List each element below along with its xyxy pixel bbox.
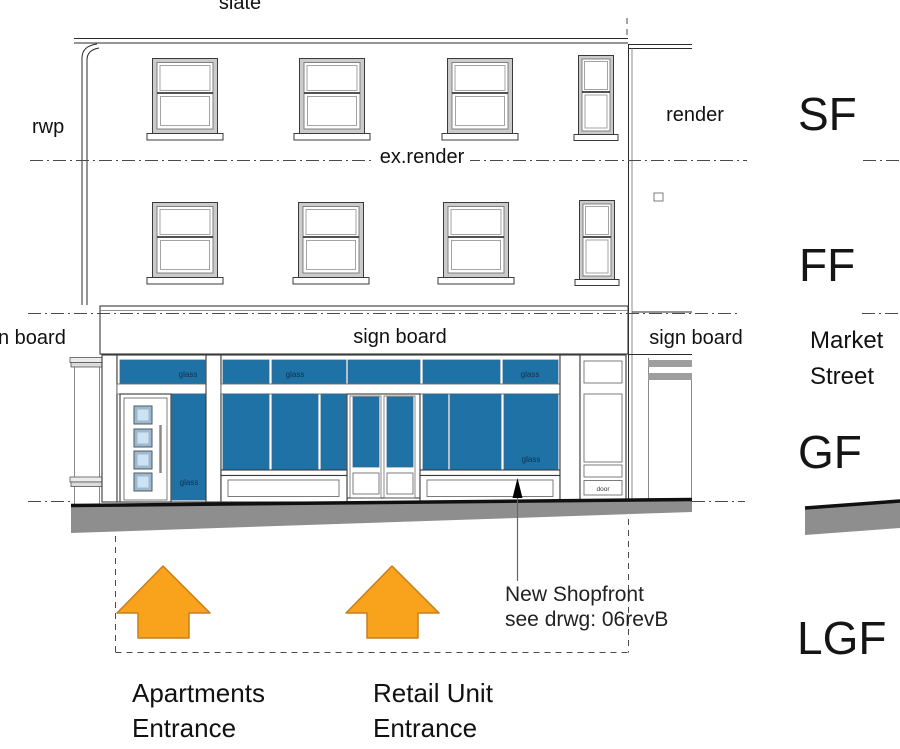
sash-window <box>293 203 369 285</box>
signboard-label-left: n board <box>0 327 66 349</box>
sash-window <box>442 59 518 141</box>
roofline <box>74 18 692 49</box>
transom-bar <box>117 384 207 394</box>
building-corner <box>629 44 633 505</box>
retail-unit <box>221 355 560 502</box>
left-neighbor-pilaster <box>70 358 103 507</box>
floor-label-ff: FF <box>799 239 855 291</box>
rwp-label: rwp <box>32 116 64 138</box>
right-neighbor <box>648 358 692 506</box>
signboard-label-right: sign board <box>649 327 742 349</box>
pavement <box>71 500 900 536</box>
floor-label-lgf: LGF <box>797 612 886 664</box>
elevation-drawing: slate rwp ex.render render SF FF GF LGF … <box>0 0 900 749</box>
render-label: render <box>666 104 724 126</box>
pilaster <box>560 355 580 502</box>
glass-label: glass <box>286 370 305 379</box>
transom-glazing <box>223 360 558 384</box>
apartments-arrow <box>117 566 210 638</box>
signboard-label-center: sign board <box>353 326 446 348</box>
sash-window-narrow <box>575 201 619 286</box>
glass-label: glass <box>179 370 198 379</box>
sash-window <box>147 203 223 285</box>
small-vent <box>654 193 663 201</box>
pilaster <box>102 355 117 502</box>
pilaster <box>206 355 221 502</box>
glass-label: glass <box>521 370 540 379</box>
ex-render-label: ex.render <box>380 146 465 168</box>
retail-entrance-line2: Entrance <box>373 713 477 743</box>
retail-entrance-line1: Retail Unit <box>373 678 494 708</box>
sash-window-narrow <box>574 56 618 141</box>
transom-bar <box>221 384 560 394</box>
sf-windows <box>147 56 618 141</box>
sash-window <box>294 59 370 141</box>
apartments-entrance-line2: Entrance <box>132 713 236 743</box>
street-name-line2: Street <box>810 363 874 390</box>
floor-label-gf: GF <box>798 426 862 478</box>
roof-material-label: slate <box>219 0 261 14</box>
apartments-entrance-line1: Apartments <box>132 678 265 708</box>
door-label: door <box>596 486 610 493</box>
glass-label: glass <box>522 455 541 464</box>
rainwater-pipe <box>82 44 99 305</box>
side-door-unit <box>580 355 626 502</box>
entrance-arrows <box>117 566 439 638</box>
sash-window <box>438 203 514 285</box>
retail-double-door <box>347 394 420 498</box>
note-leader <box>513 478 523 581</box>
glass-label: glass <box>180 478 199 487</box>
shopfront-note-line2: see drwg: 06revB <box>505 608 668 631</box>
floor-label-sf: SF <box>798 88 857 140</box>
sash-window <box>147 59 223 141</box>
street-name-line1: Market <box>810 327 884 354</box>
shopfront-note-line1: New Shopfront <box>505 583 644 606</box>
retail-arrow <box>346 566 439 638</box>
ff-windows <box>147 193 663 286</box>
